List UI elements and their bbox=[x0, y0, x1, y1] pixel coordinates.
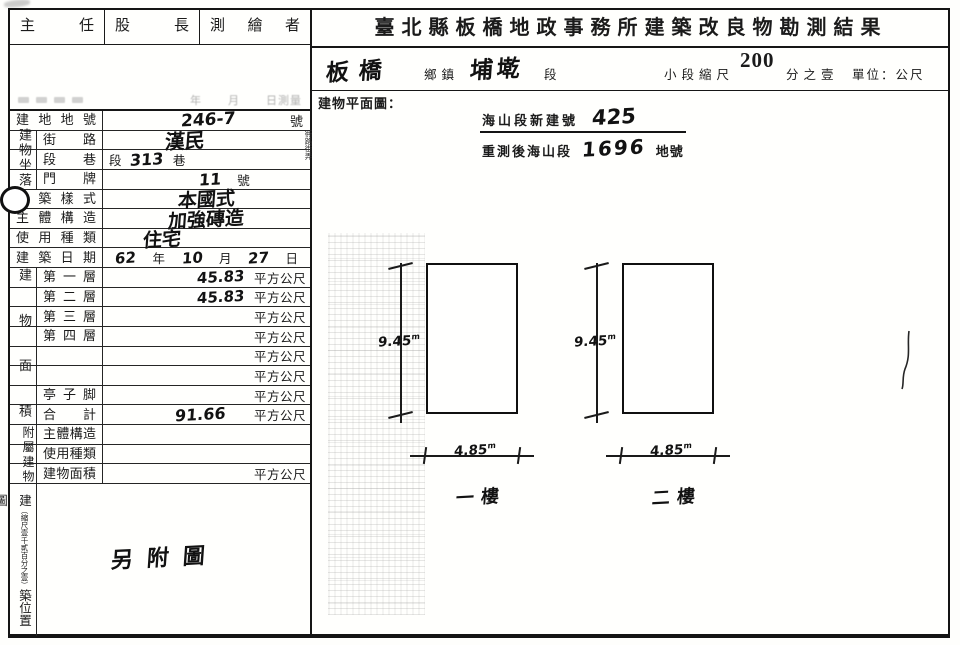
site-map-section: 建（縮尺壹千貳百分之壹）築位置圖 另附圖 bbox=[10, 484, 310, 636]
form-sheet: 主任 股長 測繪者 年 月 日測量 bbox=[8, 8, 950, 638]
site-map-vertical-label: 建（縮尺壹千貳百分之壹）築位置圖 bbox=[10, 484, 37, 636]
year-unit: 年 bbox=[152, 248, 165, 267]
section-label: 段 bbox=[544, 64, 562, 83]
floor-outline-rectangle bbox=[622, 263, 714, 414]
year-label: 年 bbox=[190, 92, 202, 108]
floor2-label: 第二層 bbox=[43, 288, 96, 306]
annex-structure-label: 主體構造 bbox=[43, 425, 96, 443]
ink-blob-artifact bbox=[0, 186, 30, 214]
day-survey-label: 日測量 bbox=[266, 92, 302, 108]
scale-suffix: 分之壹 bbox=[786, 64, 839, 83]
row-street: 街路 漢民 bbox=[10, 131, 310, 151]
row-total-area: 合計 91.66 平方公尺 bbox=[10, 405, 310, 425]
lane-post-label: 巷 bbox=[173, 150, 186, 169]
area-unit: 平方公尺 bbox=[254, 405, 310, 424]
surveyor-cell: 測繪者 bbox=[200, 10, 310, 44]
form-rows: 建地地號 246-7 號 街路 漢民 段巷 bbox=[10, 111, 310, 484]
porch-label: 亭子脚 bbox=[43, 386, 96, 404]
left-form-table: 主任 股長 測繪者 年 月 日測量 bbox=[10, 10, 312, 634]
width-dimension-label: 4.85m bbox=[649, 441, 692, 460]
height-dimension-label: 9.45m bbox=[573, 332, 616, 351]
resurvey-lot-no-handwritten: 1696 bbox=[581, 134, 646, 161]
illegible-faint-text bbox=[18, 97, 29, 103]
meta-row: 板橋 鄉鎮 埔墘 段 小段縮尺 200 分之壹 單位：公尺 bbox=[312, 48, 950, 91]
row-floor-2-area: 第二層 45.83 平方公尺 bbox=[10, 288, 310, 308]
street-lane-side-note: 衖路街弄 bbox=[298, 130, 311, 176]
lane-value-handwritten: 313 bbox=[129, 149, 164, 170]
lot-label: 建地地號 bbox=[16, 111, 96, 129]
row-floor-1-area: 第一層 45.83 平方公尺 bbox=[10, 268, 310, 288]
area-unit: 平方公尺 bbox=[254, 366, 310, 385]
built-month-handwritten: 10 bbox=[181, 248, 203, 267]
section-chief-cell: 股長 bbox=[105, 10, 200, 44]
section-value-handwritten: 埔墘 bbox=[469, 49, 525, 86]
area-unit: 平方公尺 bbox=[254, 386, 310, 405]
annex-group-label: 附屬建物 bbox=[13, 426, 35, 482]
illegible-faint-text bbox=[72, 97, 83, 103]
floor-plan-area: 建物平面圖： 海山段新建號 425 重測後海山段 1696 地號 bbox=[312, 91, 950, 638]
built-day-handwritten: 27 bbox=[247, 248, 269, 267]
floor-1-figure: 9.45m 4.85m 一樓 bbox=[372, 259, 557, 519]
annex-area-label: 建物面積 bbox=[43, 465, 96, 483]
new-building-no-label: 海山段新建號 bbox=[482, 110, 578, 129]
site-scale-note: （縮尺壹千貳百分之壹） bbox=[20, 507, 29, 590]
township-value-handwritten: 板橋 bbox=[325, 50, 393, 88]
usage-label: 使用種類 bbox=[16, 229, 96, 247]
row-porch-area: 亭子脚 平方公尺 bbox=[10, 386, 310, 406]
faded-survey-date-row: 年 月 日測量 bbox=[10, 92, 310, 108]
site-label-first: 建 bbox=[17, 494, 31, 507]
built-year-handwritten: 62 bbox=[114, 248, 136, 267]
floor1-label: 第一層 bbox=[43, 268, 96, 286]
floor-name-label: 一樓 bbox=[455, 482, 507, 511]
site-map-cell: 另附圖 bbox=[37, 484, 310, 636]
row-area-blank-1: 平方公尺 bbox=[10, 347, 310, 367]
unit-label: 單位：公尺 bbox=[852, 64, 925, 83]
stray-pen-stroke-artifact bbox=[898, 329, 914, 391]
floor3-label: 第三層 bbox=[43, 308, 96, 326]
total-value-handwritten: 91.66 bbox=[175, 404, 227, 426]
row-section-lane: 段巷 段 313 巷 bbox=[10, 150, 310, 170]
illegible-faint-text bbox=[54, 97, 65, 103]
lane-pre-label: 段 bbox=[109, 150, 122, 169]
area-unit: 平方公尺 bbox=[254, 307, 310, 326]
officials-header-row: 主任 股長 測繪者 bbox=[10, 10, 310, 45]
row-annex-area: 建物面積 平方公尺 bbox=[10, 464, 310, 484]
survey-result-section: 臺北縣板橋地政事務所建築改良物勘測結果 板橋 鄉鎮 埔墘 段 小段縮尺 200 … bbox=[312, 10, 950, 634]
row-area-blank-2: 平方公尺 bbox=[10, 366, 310, 386]
plate-label: 門牌 bbox=[43, 170, 96, 188]
row-annex-usage: 使用種類 bbox=[10, 445, 310, 465]
resurvey-section-label: 重測後海山段 bbox=[482, 141, 572, 160]
area-unit: 平方公尺 bbox=[254, 464, 310, 483]
location-group-label: 建物坐落 bbox=[13, 128, 35, 186]
month-unit: 月 bbox=[219, 248, 232, 267]
scale-value-stamped: 200 bbox=[740, 48, 775, 73]
township-label: 鄉鎮 bbox=[424, 64, 459, 83]
chief-cell: 主任 bbox=[10, 10, 105, 44]
survey-date-labels: 年 月 日測量 bbox=[190, 92, 302, 108]
day-unit: 日 bbox=[285, 248, 298, 267]
row-floor-4-area: 第四層 平方公尺 bbox=[10, 327, 310, 347]
built-date-label: 建築日期 bbox=[16, 249, 96, 267]
page-title: 臺北縣板橋地政事務所建築改良物勘測結果 bbox=[312, 10, 950, 48]
row-built-date: 建築日期 62 年 10 月 27 日 bbox=[10, 248, 310, 268]
scale-label: 小段縮尺 bbox=[664, 64, 734, 83]
street-label: 街路 bbox=[43, 131, 96, 149]
floor1-value-handwritten: 45.83 bbox=[196, 267, 245, 288]
row-annex-structure: 主體構造 bbox=[10, 425, 310, 445]
floor-name-label: 二樓 bbox=[651, 482, 703, 511]
width-dimension-label: 4.85m bbox=[453, 441, 496, 460]
scanned-survey-form: 主任 股長 測繪者 年 月 日測量 bbox=[0, 0, 960, 645]
floor2-value-handwritten: 45.83 bbox=[196, 287, 245, 308]
see-attached-drawing-handwritten: 另附圖 bbox=[110, 537, 220, 575]
height-dimension-label: 9.45m bbox=[377, 332, 420, 351]
area-unit: 平方公尺 bbox=[254, 287, 310, 306]
area-unit: 平方公尺 bbox=[254, 346, 310, 365]
floor4-label: 第四層 bbox=[43, 327, 96, 345]
annex-usage-label: 使用種類 bbox=[43, 445, 96, 463]
row-usage-type: 使用種類 住宅 bbox=[10, 229, 310, 249]
area-group-label: 建物面積 bbox=[13, 268, 35, 423]
area-unit: 平方公尺 bbox=[254, 327, 310, 346]
month-label: 月 bbox=[228, 92, 240, 108]
new-building-no-handwritten: 425 bbox=[591, 104, 636, 130]
floor-outline-rectangle bbox=[426, 263, 518, 414]
total-label: 合計 bbox=[43, 406, 96, 424]
structure-label: 主體構造 bbox=[16, 209, 96, 227]
lot-stamp-block: 海山段新建號 425 重測後海山段 1696 地號 bbox=[480, 105, 686, 160]
signature-blank-area: 年 月 日測量 bbox=[10, 45, 310, 111]
floor-2-figure: 9.45m 4.85m 二樓 bbox=[568, 259, 753, 519]
floor-plan-label: 建物平面圖： bbox=[318, 93, 402, 112]
row-floor-3-area: 第三層 平方公尺 bbox=[10, 307, 310, 327]
lot-no-suffix-label: 地號 bbox=[656, 141, 684, 160]
area-unit: 平方公尺 bbox=[254, 268, 310, 287]
illegible-faint-text bbox=[36, 97, 47, 103]
lane-label: 段巷 bbox=[43, 151, 96, 169]
